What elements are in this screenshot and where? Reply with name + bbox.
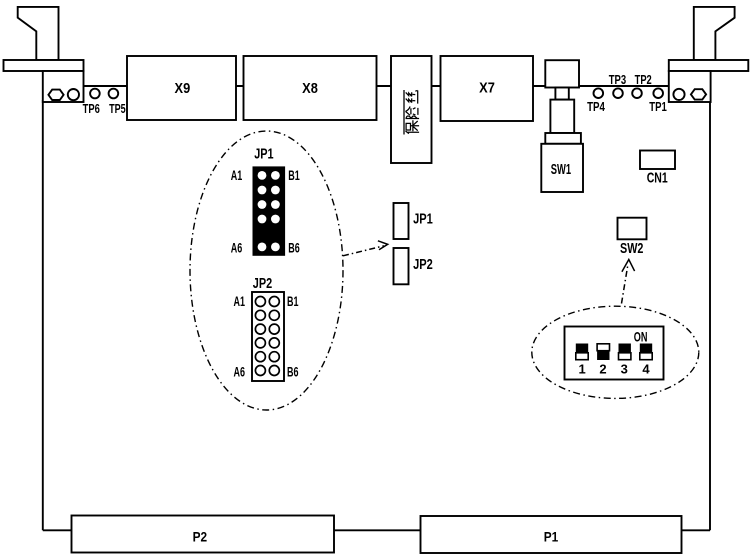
svg-text:X7: X7	[479, 80, 495, 97]
svg-text:SW1: SW1	[551, 161, 571, 178]
svg-text:CN1: CN1	[647, 170, 668, 187]
svg-text:JP2: JP2	[413, 256, 433, 273]
svg-text:P2: P2	[193, 528, 208, 544]
svg-text:B1: B1	[288, 167, 300, 183]
svg-text:3: 3	[621, 362, 628, 377]
svg-text:4: 4	[642, 362, 650, 377]
svg-text:TP1: TP1	[649, 99, 667, 114]
svg-text:A1: A1	[231, 167, 243, 183]
svg-text:B6: B6	[287, 364, 299, 380]
svg-text:TP6: TP6	[83, 101, 100, 116]
svg-text:TP5: TP5	[109, 101, 126, 116]
svg-text:JP1: JP1	[413, 211, 433, 228]
svg-text:JP1: JP1	[254, 147, 273, 163]
svg-text:X8: X8	[302, 80, 318, 97]
svg-text:2: 2	[599, 362, 606, 377]
svg-text:X9: X9	[175, 80, 191, 97]
svg-text:TP3: TP3	[609, 72, 626, 87]
svg-text:ON: ON	[634, 328, 648, 344]
svg-text:SW2: SW2	[620, 240, 643, 257]
svg-text:1: 1	[578, 362, 585, 377]
svg-text:B6: B6	[288, 239, 300, 255]
svg-text:P1: P1	[544, 528, 559, 544]
svg-text:A6: A6	[231, 239, 243, 255]
svg-text:TP2: TP2	[635, 72, 652, 87]
svg-text:B1: B1	[287, 293, 299, 309]
svg-text:TP4: TP4	[587, 99, 605, 114]
svg-text:JP2: JP2	[253, 276, 272, 292]
svg-text:A1: A1	[234, 293, 246, 309]
svg-text:A6: A6	[234, 364, 246, 380]
